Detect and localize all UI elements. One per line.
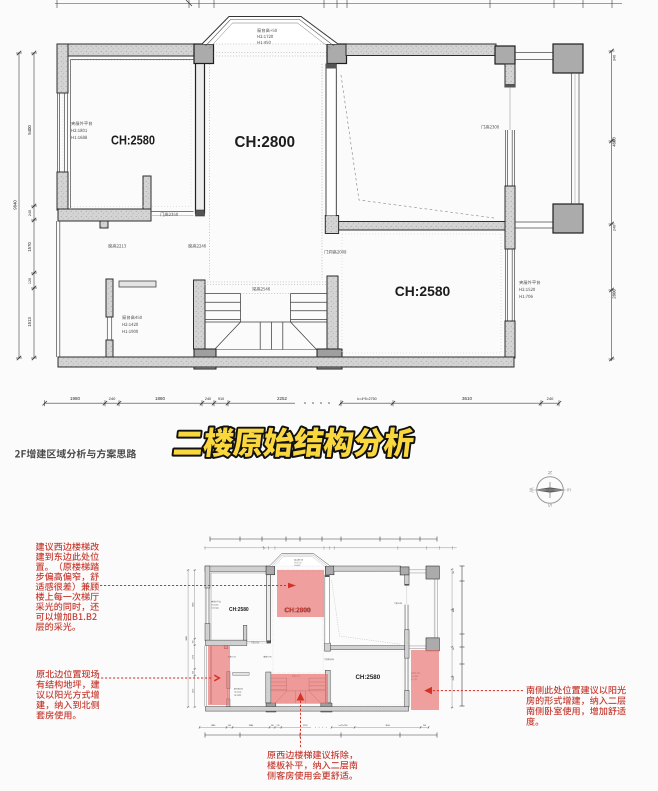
- svg-text:CH:2800: CH:2800: [235, 134, 296, 151]
- svg-text:240: 240: [613, 225, 617, 231]
- svg-text:1980: 1980: [70, 396, 81, 401]
- svg-text:2252: 2252: [277, 396, 288, 401]
- svg-text:k=4*5=2750: k=4*5=2750: [357, 397, 376, 401]
- svg-text:120: 120: [28, 278, 32, 284]
- svg-text:1570: 1570: [27, 242, 32, 252]
- svg-text:CH:2580: CH:2580: [395, 283, 451, 299]
- svg-text:CH:2800: CH:2800: [285, 607, 311, 614]
- svg-text:240: 240: [205, 397, 211, 401]
- svg-text:2800: 2800: [612, 289, 617, 299]
- svg-text:5400: 5400: [27, 125, 32, 135]
- svg-text:240: 240: [547, 396, 554, 401]
- svg-text:240: 240: [28, 210, 32, 216]
- svg-text:CH:2580: CH:2580: [111, 134, 155, 148]
- svg-text:3610: 3610: [462, 396, 473, 401]
- svg-text:S: S: [546, 503, 552, 507]
- svg-text:9840: 9840: [13, 200, 18, 210]
- svg-text:340: 340: [613, 55, 617, 61]
- svg-text:1880: 1880: [155, 396, 166, 401]
- svg-text:910: 910: [218, 397, 224, 401]
- svg-text:W: W: [527, 488, 533, 493]
- svg-text:1513: 1513: [27, 317, 32, 327]
- svg-text:4600: 4600: [612, 137, 617, 147]
- svg-text:240: 240: [109, 396, 116, 401]
- svg-text:N: N: [546, 471, 552, 475]
- svg-text:E: E: [565, 488, 571, 492]
